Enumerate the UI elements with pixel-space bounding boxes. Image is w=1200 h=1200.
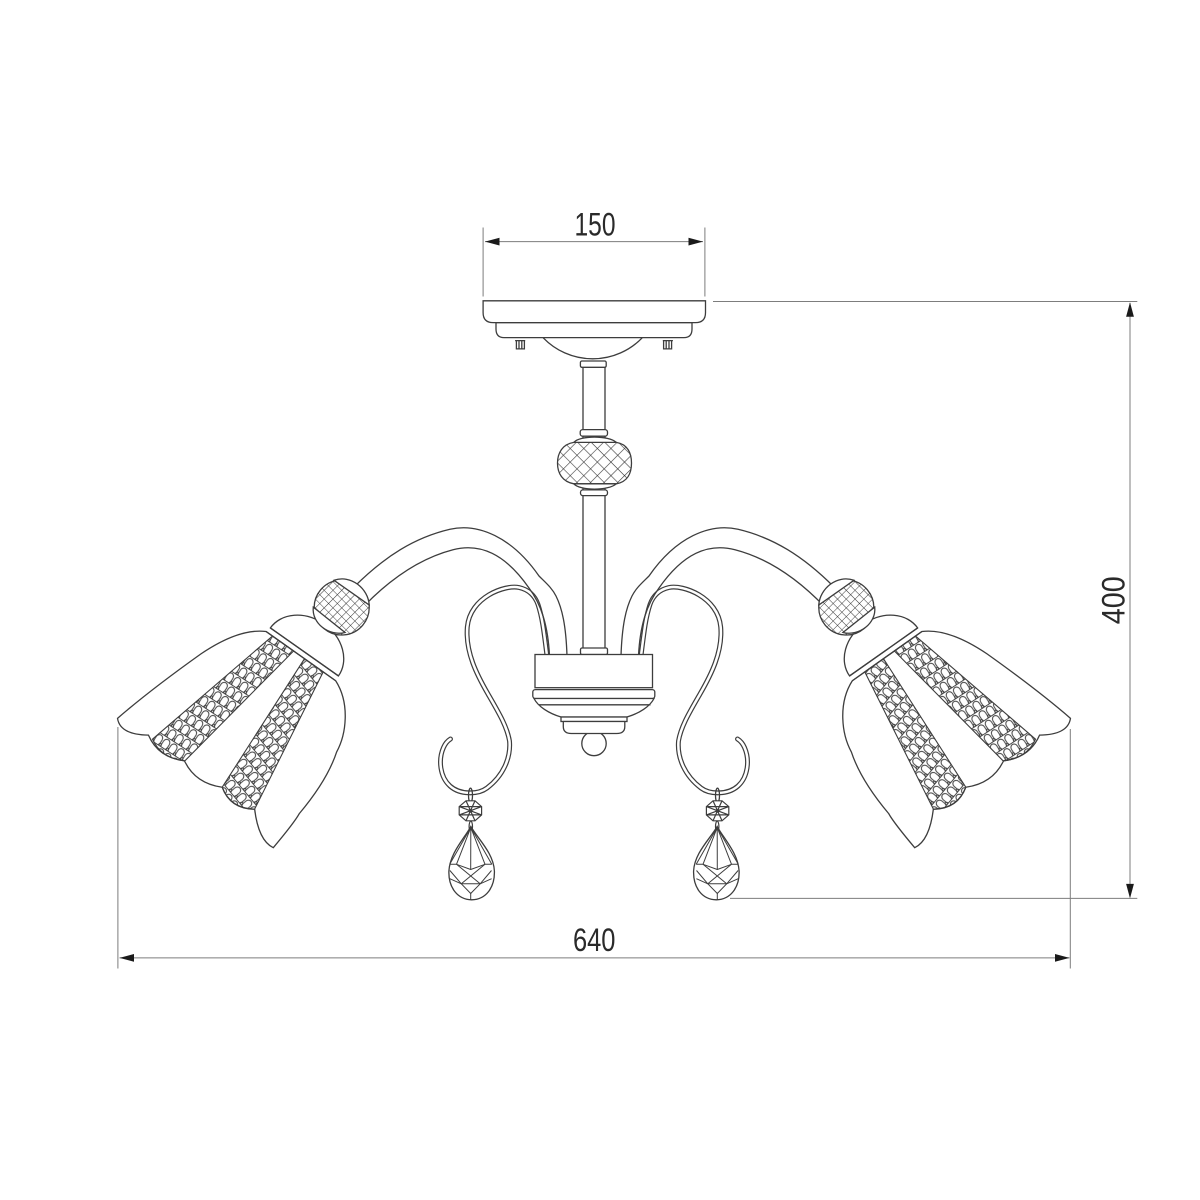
svg-text:640: 640 bbox=[573, 922, 616, 958]
svg-text:400: 400 bbox=[1095, 576, 1131, 624]
svg-text:150: 150 bbox=[575, 207, 616, 243]
